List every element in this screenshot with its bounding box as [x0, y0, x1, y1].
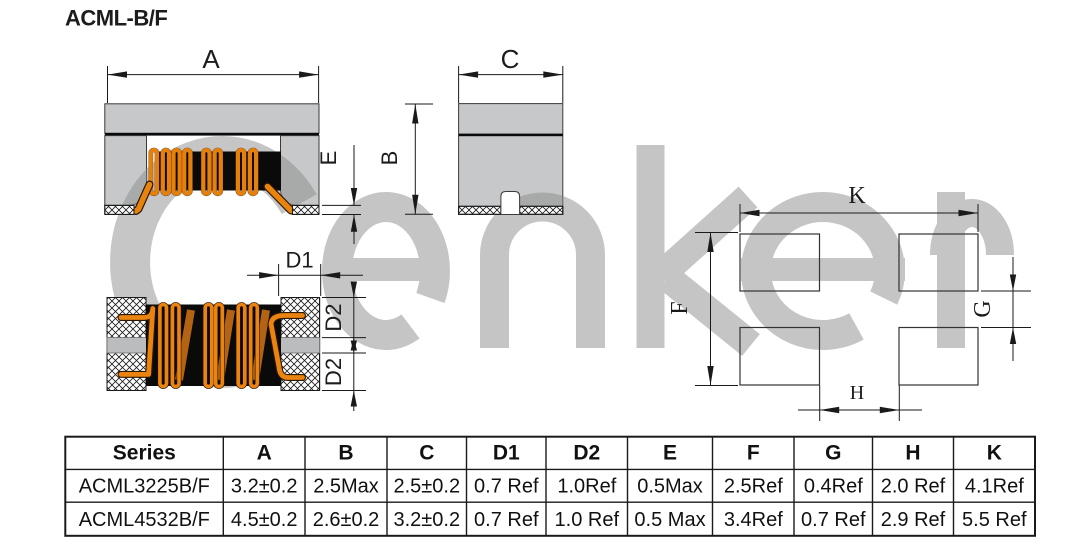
svg-text:2.5Ref: 2.5Ref: [724, 476, 783, 498]
svg-text:K: K: [848, 183, 866, 209]
svg-text:H: H: [850, 382, 864, 404]
svg-text:0.5Max: 0.5Max: [637, 476, 703, 498]
svg-text:D1: D1: [493, 442, 520, 465]
svg-text:2.6±0.2: 2.6±0.2: [313, 509, 380, 531]
svg-text:Series: Series: [113, 442, 176, 465]
svg-text:2.5Max: 2.5Max: [313, 476, 379, 498]
svg-text:E: E: [316, 151, 341, 166]
svg-text:F: F: [747, 442, 760, 465]
svg-text:0.5 Max: 0.5 Max: [634, 509, 705, 531]
svg-text:C: C: [501, 44, 520, 74]
svg-text:4.5±0.2: 4.5±0.2: [231, 509, 298, 531]
svg-text:ACML3225B/F: ACML3225B/F: [79, 476, 210, 498]
svg-text:3.2±0.2: 3.2±0.2: [394, 509, 461, 531]
svg-text:D2: D2: [321, 358, 346, 386]
svg-text:A: A: [257, 442, 272, 465]
svg-text:0.7 Ref: 0.7 Ref: [801, 509, 866, 531]
svg-text:2.0 Ref: 2.0 Ref: [881, 476, 946, 498]
svg-text:B: B: [338, 442, 353, 465]
svg-text:G: G: [825, 442, 841, 465]
svg-text:G: G: [970, 300, 996, 317]
svg-text:5.5 Ref: 5.5 Ref: [962, 509, 1027, 531]
svg-text:1.0Ref: 1.0Ref: [557, 476, 616, 498]
svg-text:3.4Ref: 3.4Ref: [724, 509, 783, 531]
svg-text:0.7 Ref: 0.7 Ref: [474, 476, 539, 498]
svg-text:D1: D1: [286, 248, 314, 273]
svg-text:A: A: [202, 44, 220, 74]
svg-text:2.9 Ref: 2.9 Ref: [881, 509, 946, 531]
svg-text:F: F: [667, 301, 693, 314]
svg-text:3.2±0.2: 3.2±0.2: [231, 476, 298, 498]
svg-text:K: K: [987, 442, 1002, 465]
svg-text:H: H: [905, 442, 920, 465]
svg-text:1.0 Ref: 1.0 Ref: [555, 509, 620, 531]
svg-text:D2: D2: [573, 442, 600, 465]
svg-text:0.4Ref: 0.4Ref: [804, 476, 863, 498]
svg-text:E: E: [663, 442, 677, 465]
svg-text:D2: D2: [321, 304, 346, 332]
svg-text:B: B: [377, 151, 402, 166]
svg-text:4.1Ref: 4.1Ref: [965, 476, 1024, 498]
svg-text:2.5±0.2: 2.5±0.2: [394, 476, 461, 498]
svg-text:0.7 Ref: 0.7 Ref: [474, 509, 539, 531]
svg-text:C: C: [419, 442, 434, 465]
svg-text:ACML4532B/F: ACML4532B/F: [79, 509, 210, 531]
svg-text:ACML-B/F: ACML-B/F: [65, 6, 167, 31]
